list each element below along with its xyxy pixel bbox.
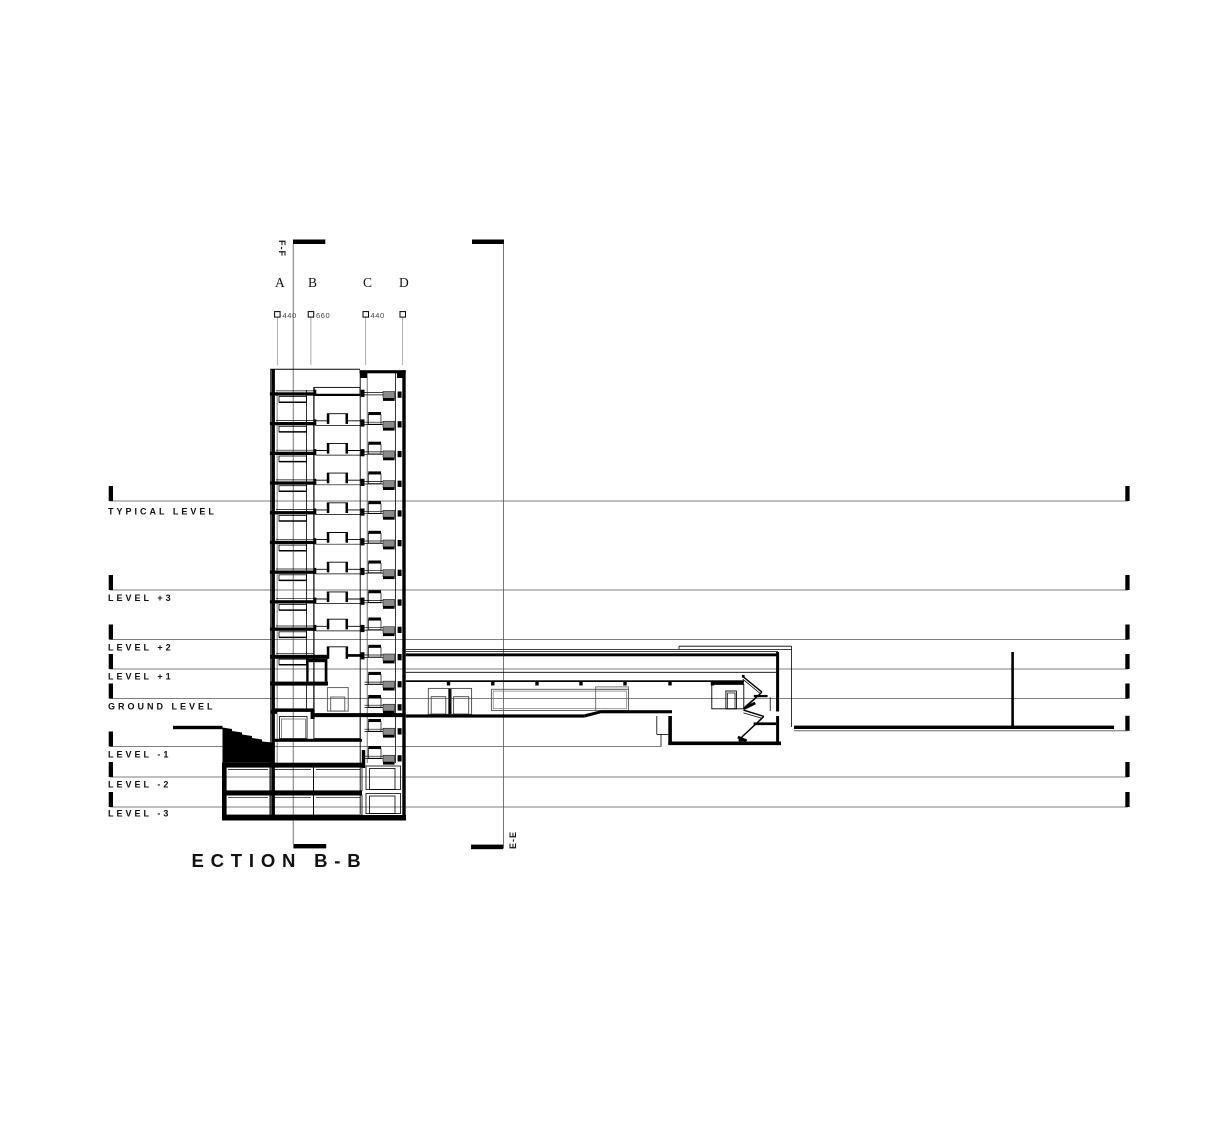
svg-text:LEVEL -1: LEVEL -1 [108,749,171,759]
svg-text:E-E: E-E [508,831,518,849]
svg-text:C: C [363,275,372,290]
svg-text:B: B [308,275,317,290]
svg-text:440: 440 [371,311,385,320]
svg-text:LEVEL -2: LEVEL -2 [108,779,171,789]
svg-text:LEVEL +2: LEVEL +2 [108,643,174,653]
svg-text:LEVEL -3: LEVEL -3 [108,809,171,819]
svg-text:A: A [275,275,285,290]
svg-text:F-F: F-F [277,240,287,257]
svg-text:ECTION B-B: ECTION B-B [192,850,368,871]
svg-text:GROUND LEVEL: GROUND LEVEL [108,702,216,712]
svg-text:TYPICAL LEVEL: TYPICAL LEVEL [108,507,217,517]
svg-text:660: 660 [316,311,330,320]
svg-text:LEVEL +1: LEVEL +1 [108,671,174,681]
svg-text:440: 440 [283,311,297,320]
svg-text:D: D [399,275,409,290]
svg-text:LEVEL +3: LEVEL +3 [108,593,174,603]
